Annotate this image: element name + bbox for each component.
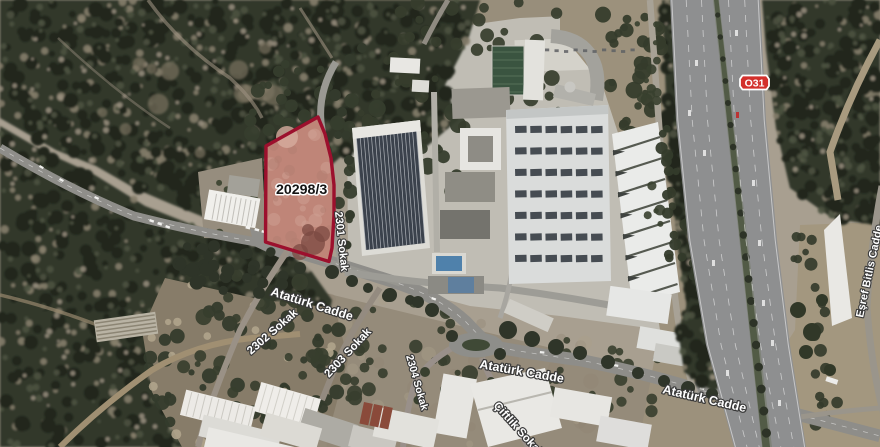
- svg-text:20298/3: 20298/3: [276, 182, 327, 198]
- svg-text:O31: O31: [745, 77, 765, 89]
